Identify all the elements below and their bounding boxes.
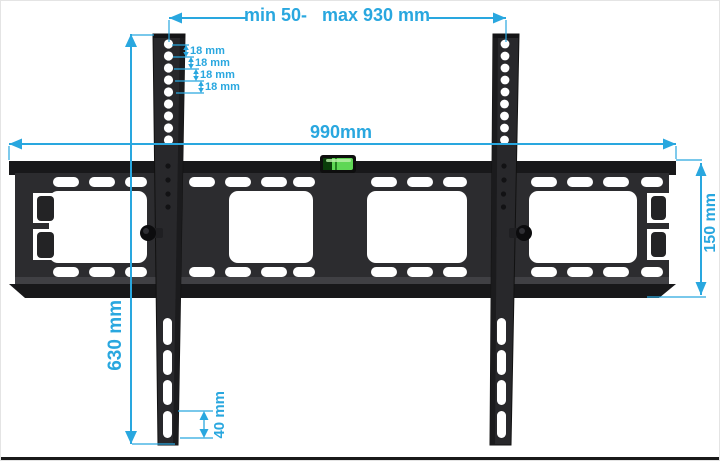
arrow-down-icon <box>125 431 137 444</box>
mount-span-min: min 50- <box>244 4 307 26</box>
arrow-right-icon <box>493 13 506 24</box>
hole-spacing-label: 18 mm <box>200 69 235 81</box>
arrow-down-icon <box>696 282 707 295</box>
bubble-level <box>320 155 356 173</box>
right-vesa-rail <box>490 34 532 445</box>
arrow-down-icon <box>200 429 209 438</box>
image-bottom-border <box>1 457 720 460</box>
arrow-up-icon <box>200 411 209 420</box>
wall-plate <box>9 155 676 298</box>
right-rail-holes <box>500 40 509 145</box>
slot-height-label: 40 mm <box>209 391 231 439</box>
arrow-up-icon <box>125 34 137 47</box>
bracket-graphic <box>1 1 720 461</box>
updown-arrow-icon <box>198 81 204 93</box>
plate-width-label: 990mm <box>310 121 372 143</box>
arrow-right-icon <box>663 139 676 150</box>
slot-height-dimension <box>178 411 213 438</box>
updown-arrow-icon <box>193 69 199 81</box>
hole-spacing-label: 18 mm <box>205 81 240 93</box>
arrow-up-icon <box>696 163 707 176</box>
mount-span-max: max 930 mm <box>322 4 430 26</box>
hole-spacing-label: 18 mm <box>190 45 225 57</box>
plate-lower-ridge <box>15 277 669 284</box>
left-rail-holes <box>164 39 173 144</box>
hole-spacing-label: 18 mm <box>195 57 230 69</box>
updown-arrow-icon <box>188 57 194 69</box>
arrow-left-icon <box>169 13 182 24</box>
left-vesa-rail <box>140 34 185 445</box>
plate-height-label: 150 mm <box>700 193 720 253</box>
mount-span-label: min 50- max 930 mm <box>239 4 435 26</box>
arrow-left-icon <box>9 139 22 150</box>
rail-height-label: 630 mm <box>105 300 127 371</box>
wall-mount-diagram: min 50- max 930 mm 990mm 630 mm 150 mm 4… <box>0 0 720 461</box>
plate-bottom-flange <box>9 284 676 298</box>
